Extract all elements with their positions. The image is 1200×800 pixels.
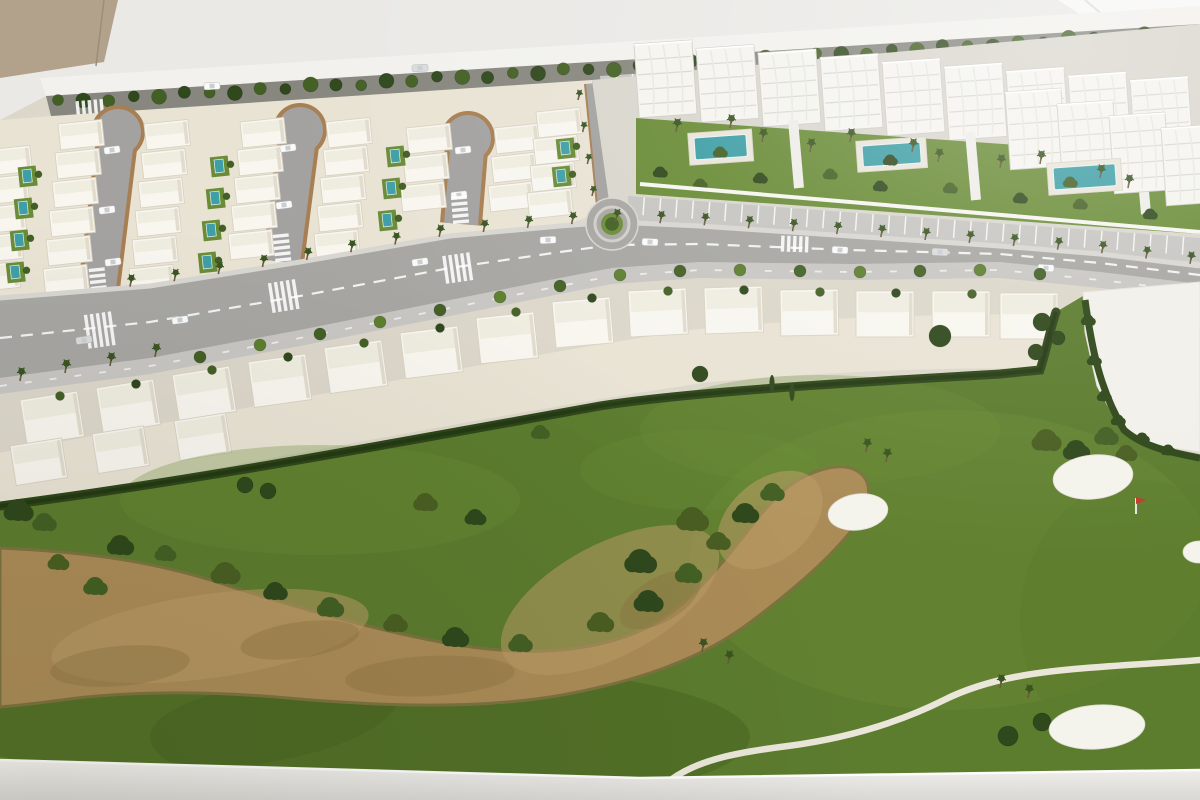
photo-lighting-overlay [0, 0, 1200, 800]
shadow-vignette [0, 0, 1200, 800]
architectural-model-photo: Architectural scale model - golf resort … [0, 0, 1200, 800]
model-photo-canvas: Architectural scale model - golf resort … [0, 0, 1200, 800]
